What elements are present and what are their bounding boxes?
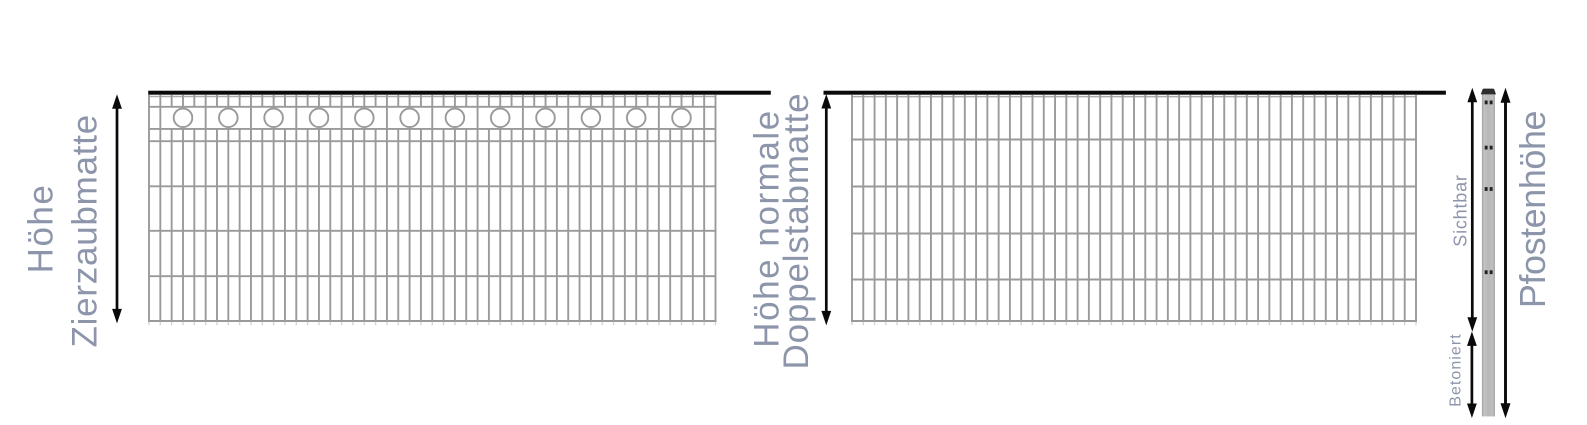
svg-text:Betoniert: Betoniert xyxy=(1448,333,1465,407)
svg-text:Pfostenhöhe: Pfostenhöhe xyxy=(1512,111,1553,308)
svg-text:Sichtbar: Sichtbar xyxy=(1451,174,1471,246)
svg-text:Doppelstabmatte: Doppelstabmatte xyxy=(777,93,816,370)
svg-text:Zierzaubmatte: Zierzaubmatte xyxy=(65,114,104,347)
svg-text:Höhe: Höhe xyxy=(22,184,61,274)
